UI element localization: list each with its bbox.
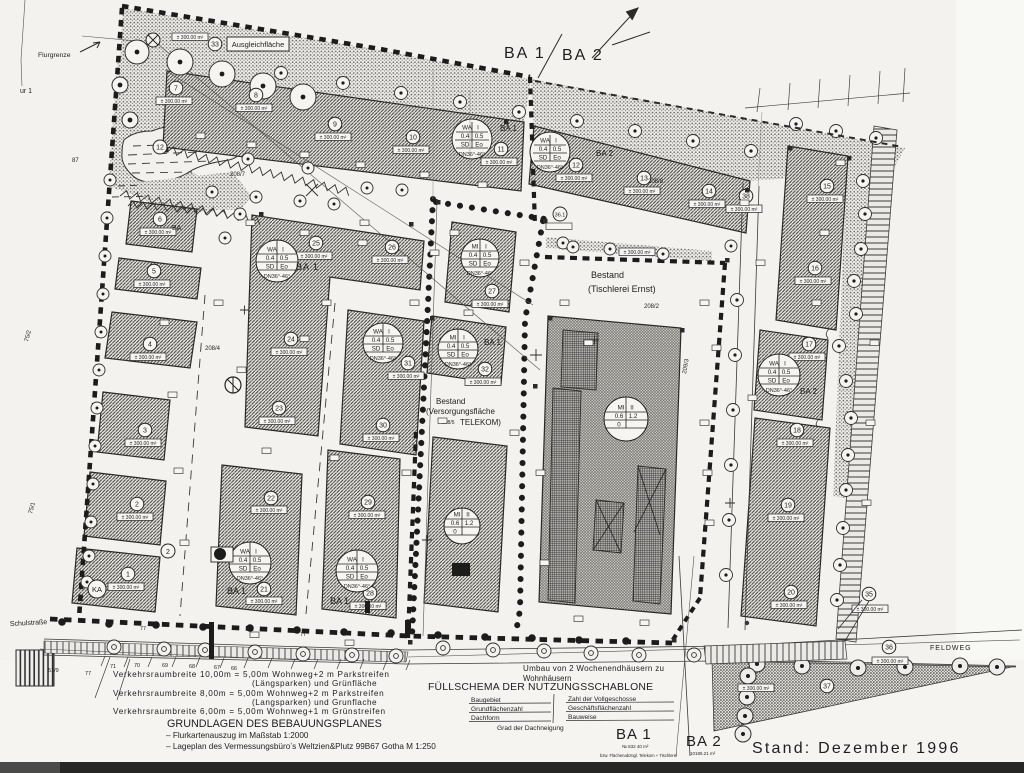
svg-text:BA 1: BA 1 (330, 596, 349, 606)
svg-text:16: 16 (811, 265, 819, 272)
svg-text:± 300.00 m²: ± 300.00 m² (776, 603, 803, 609)
svg-text:MI: MI (450, 335, 457, 342)
svg-text:0.4: 0.4 (469, 252, 478, 259)
svg-text:10185.21 m²: 10185.21 m² (690, 751, 716, 756)
svg-text:15: 15 (823, 183, 831, 190)
svg-text:SD: SD (447, 352, 456, 359)
svg-text:± 300.00 m²: ± 300.00 m² (251, 599, 278, 605)
svg-text:Eo: Eo (253, 566, 261, 573)
svg-text:Eo: Eo (280, 264, 288, 271)
svg-text:± 300.00 m²: ± 300.00 m² (477, 302, 504, 308)
svg-text:± 300.00 m²: ± 300.00 m² (800, 279, 827, 285)
svg-text:II: II (466, 512, 470, 519)
svg-text:13: 13 (640, 175, 648, 182)
svg-text:SD: SD (346, 574, 355, 581)
svg-text:BA 2: BA 2 (800, 387, 817, 396)
svg-text:MI: MI (618, 405, 625, 412)
svg-text:DN36°-46°: DN36°-46° (237, 576, 263, 582)
svg-text:FÜLLSCHEMA DER NUTZUNGSSCHAB: FÜLLSCHEMA DER NUTZUNGSSCHABLONE (428, 681, 653, 693)
svg-text:23: 23 (275, 405, 283, 412)
svg-text:± 300.00 m²: ± 300.00 m² (368, 436, 395, 442)
svg-text:BA 2: BA 2 (596, 149, 613, 158)
svg-text:± 300.00 m²: ± 300.00 m² (398, 148, 425, 154)
svg-text:0.5: 0.5 (386, 337, 395, 344)
svg-text:0.4: 0.4 (239, 557, 248, 564)
svg-text:Grad der Dachneigung: Grad der Dachneigung (497, 725, 564, 732)
svg-text:208/4: 208/4 (205, 346, 221, 352)
svg-text:SD: SD (266, 264, 275, 271)
svg-text:Verkehrsraumbreite 8,00m =: Verkehrsraumbreite 8,00m = 5,00m Wohnweg… (113, 689, 384, 698)
svg-text:51/9: 51/9 (48, 668, 59, 674)
svg-text:TELEKOM): TELEKOM) (460, 418, 501, 427)
svg-text:I: I (555, 138, 557, 145)
svg-text:± 300.00 m²: ± 300.00 m² (139, 282, 166, 288)
svg-text:I: I (463, 335, 465, 342)
svg-text:± 300.00 m²: ± 300.00 m² (256, 508, 283, 514)
svg-text:33: 33 (211, 41, 219, 48)
svg-text:SD: SD (469, 261, 478, 268)
svg-text:0.4: 0.4 (346, 565, 355, 572)
svg-text:0.6: 0.6 (615, 413, 624, 420)
svg-text:77: 77 (300, 632, 306, 638)
svg-text:8: 8 (254, 92, 258, 99)
svg-text:± 300.00 m²: ± 300.00 m² (393, 374, 420, 380)
svg-text:7: 7 (174, 85, 178, 92)
svg-text:DN36°-46°: DN36°-46° (459, 152, 485, 158)
svg-text:0.5: 0.5 (483, 252, 492, 259)
svg-text:208/8: 208/8 (648, 179, 664, 185)
svg-text:1: 1 (218, 552, 222, 559)
svg-text:I: I (388, 329, 390, 336)
svg-text:1.2: 1.2 (629, 413, 638, 420)
svg-text:77: 77 (140, 626, 146, 632)
svg-text:± 300.00 m²: ± 300.00 m² (264, 419, 291, 425)
svg-text:MI: MI (472, 244, 479, 251)
svg-text:SD: SD (461, 142, 470, 149)
svg-text:0.5: 0.5 (475, 133, 484, 140)
svg-text:BA 2: BA 2 (686, 733, 722, 750)
svg-text:37: 37 (823, 683, 831, 690)
svg-text:bzw. Flächenabzügl. Telekom +: bzw. Flächenabzügl. Telekom + Tischlerei (600, 753, 677, 758)
svg-text:(Versorgungsfläche: (Versorgungsfläche (426, 407, 495, 416)
svg-text:Baugebiet: Baugebiet (471, 697, 501, 704)
svg-text:II: II (630, 405, 634, 412)
svg-text:± 300.00 m²: ± 300.00 m² (782, 441, 809, 447)
svg-text:208/7: 208/7 (230, 172, 246, 178)
svg-text:Flurgrenze: Flurgrenze (38, 52, 71, 59)
svg-text:± 300.00 m²: ± 300.00 m² (624, 250, 651, 256)
svg-text:± 300.00 m²: ± 300.00 m² (486, 160, 513, 166)
svg-text:SD: SD (768, 378, 777, 385)
svg-text:I: I (784, 361, 786, 368)
svg-text:DN36°-46°: DN36°-46° (766, 388, 792, 394)
svg-text:19: 19 (784, 502, 792, 509)
svg-text:± 300.00 m²: ± 300.00 m² (629, 189, 656, 195)
svg-text:12: 12 (572, 162, 580, 169)
svg-text:31: 31 (404, 360, 412, 367)
svg-text:± 300.00 m²: ± 300.00 m² (377, 258, 404, 264)
svg-text:SD: SD (239, 566, 248, 573)
svg-text:Dachform: Dachform (471, 715, 500, 722)
svg-text:36.1: 36.1 (555, 213, 566, 219)
svg-text:6: 6 (158, 216, 162, 223)
svg-text:DN36°-46°: DN36°-46° (537, 165, 563, 171)
svg-text:WA: WA (240, 549, 251, 556)
svg-text:17: 17 (805, 341, 813, 348)
svg-text:1.2: 1.2 (465, 520, 474, 527)
svg-text:± 300.00 m²: ± 300.00 m² (135, 355, 162, 361)
svg-text:1: 1 (126, 571, 130, 578)
svg-text:5: 5 (152, 268, 156, 275)
svg-text:± 300.00 m²: ± 300.00 m² (773, 516, 800, 522)
svg-text:± 300.00 m²: ± 300.00 m² (276, 350, 303, 356)
svg-text:0.4: 0.4 (372, 337, 381, 344)
svg-text:№ 832 40 m²: № 832 40 m² (622, 744, 649, 749)
svg-text:± 300.00 m²: ± 300.00 m² (320, 135, 347, 141)
svg-text:I: I (255, 549, 257, 556)
svg-text:Bestand: Bestand (436, 397, 465, 406)
svg-text:0.5: 0.5 (461, 343, 470, 350)
svg-text:36: 36 (885, 644, 893, 651)
svg-text:DN36°-46°: DN36°-46° (467, 271, 493, 277)
svg-text:SD: SD (539, 155, 548, 162)
svg-text:30: 30 (379, 422, 387, 429)
svg-text:0.5: 0.5 (360, 565, 369, 572)
svg-text:Eo: Eo (475, 142, 483, 149)
svg-text:Eo: Eo (483, 261, 491, 268)
svg-text:DN36°-46°: DN36°-46° (370, 356, 396, 362)
svg-text:24: 24 (287, 336, 295, 343)
svg-text:Stand: Dezember 1996: Stand: Dezember 1996 (752, 740, 961, 757)
svg-text:22: 22 (267, 495, 275, 502)
svg-text:I: I (362, 557, 364, 564)
svg-text:0.4: 0.4 (461, 133, 470, 140)
svg-text:± 300.00 m²: ± 300.00 m² (301, 254, 328, 260)
svg-text:0.6: 0.6 (451, 520, 460, 527)
svg-text:Eo: Eo (386, 346, 394, 353)
svg-text:BA 1: BA 1 (484, 338, 501, 347)
svg-text:WA: WA (267, 247, 278, 254)
svg-text:± 300.00 m²: ± 300.00 m² (145, 230, 172, 236)
svg-text:28: 28 (366, 590, 374, 597)
svg-text:WA: WA (769, 361, 780, 368)
svg-text:0.4: 0.4 (266, 255, 275, 262)
svg-text:0.4: 0.4 (539, 146, 548, 153)
svg-text:2: 2 (166, 549, 170, 556)
svg-text:26: 26 (388, 244, 396, 251)
svg-text:11: 11 (497, 146, 504, 153)
svg-text:± 300.00 m²: ± 300.00 m² (354, 513, 381, 519)
svg-text:0.4: 0.4 (768, 369, 777, 376)
svg-text:WA: WA (462, 125, 473, 132)
svg-text:(Tischlerei Ernst): (Tischlerei Ernst) (588, 284, 656, 294)
svg-text:± 300.00 m²: ± 300.00 m² (794, 355, 821, 361)
svg-text:I: I (485, 244, 487, 251)
svg-text:70: 70 (134, 663, 140, 669)
svg-text:0.5: 0.5 (782, 369, 791, 376)
svg-text:Eo: Eo (782, 378, 790, 385)
svg-text:(Langsparken) und Grunflache: (Langsparken) und Grunflache (252, 698, 377, 707)
svg-text:25: 25 (312, 240, 320, 247)
svg-text:– Lageplan des Vermessungsb: – Lageplan des Vermessungsbüroʼs Weltzie… (166, 742, 436, 751)
svg-text:± 300.00 m²: ± 300.00 m² (561, 176, 588, 182)
svg-text:WA: WA (347, 557, 358, 564)
svg-text:18: 18 (793, 427, 801, 434)
svg-text:0: 0 (453, 529, 457, 536)
svg-text:± 300.00 m²: ± 300.00 m² (731, 207, 758, 213)
svg-text:27: 27 (488, 288, 496, 295)
svg-text:Bestand: Bestand (591, 270, 624, 280)
svg-text:SD: SD (372, 346, 381, 353)
svg-text:35: 35 (865, 591, 873, 598)
svg-text:± 300.00 m²: ± 300.00 m² (743, 686, 770, 692)
svg-text:77: 77 (85, 671, 91, 677)
svg-text:FELDWEG: FELDWEG (930, 645, 972, 652)
svg-text:29: 29 (364, 499, 372, 506)
svg-text:± 300.00 m²: ± 300.00 m² (122, 515, 149, 521)
svg-text:(Längsparken) und Grünfläche: (Längsparken) und Grünfläche (252, 679, 377, 688)
svg-text:0.5: 0.5 (280, 255, 289, 262)
svg-text:Ausgleichfläche: Ausgleichfläche (232, 40, 285, 49)
svg-text:Verkehrsraumbreite 10,00m =: Verkehrsraumbreite 10,00m = 5,00m Wohnwe… (113, 670, 390, 679)
svg-text:DN36°-46°: DN36°-46° (344, 584, 370, 590)
svg-text:87: 87 (72, 158, 79, 164)
svg-text:I: I (282, 247, 284, 254)
svg-text:± 300.00 m²: ± 300.00 m² (130, 441, 157, 447)
svg-text:BA 1: BA 1 (296, 262, 319, 272)
svg-text:Bauweise: Bauweise (568, 714, 597, 721)
svg-text:KA: KA (92, 585, 102, 594)
svg-text:I: I (477, 125, 479, 132)
svg-text:± 300.00 m²: ± 300.00 m² (812, 197, 839, 203)
svg-text:WA: WA (540, 138, 551, 145)
svg-text:± 300.00 m²: ± 300.00 m² (857, 607, 884, 613)
svg-text:9: 9 (333, 121, 337, 128)
svg-text:BA 1: BA 1 (616, 726, 652, 743)
svg-text:12: 12 (156, 144, 164, 151)
svg-text:Eo: Eo (553, 155, 561, 162)
svg-text:WA: WA (373, 329, 384, 336)
svg-text:0.5: 0.5 (553, 146, 562, 153)
svg-text:GRUNDLAGEN DES BEBAUUNGSPLAN: GRUNDLAGEN DES BEBAUUNGSPLANES (167, 718, 382, 730)
svg-text:± 300.00 m²: ± 300.00 m² (694, 202, 721, 208)
svg-text:0.5: 0.5 (253, 557, 262, 564)
svg-text:DN36°-46°: DN36°-46° (445, 362, 471, 368)
svg-text:BA 1: BA 1 (500, 124, 517, 133)
svg-text:Eo: Eo (461, 352, 469, 359)
svg-text:20: 20 (787, 589, 795, 596)
svg-text:1: 1 (459, 566, 463, 575)
svg-text:Umbau von 2 Wochenendhäuser: Umbau von 2 Wochenendhäusern zu (523, 664, 664, 673)
svg-text:± 300.00 m²: ± 300.00 m² (241, 106, 268, 112)
svg-text:38: 38 (742, 193, 750, 200)
svg-text:± 300.00 m²: ± 300.00 m² (177, 35, 204, 41)
svg-text:MI: MI (454, 512, 461, 519)
svg-text:208/2: 208/2 (644, 304, 660, 310)
svg-text:Eo: Eo (360, 574, 368, 581)
svg-text:± 300.00 m²: ± 300.00 m² (470, 380, 497, 386)
svg-text:BA 2: BA 2 (562, 47, 604, 64)
svg-text:BA 1: BA 1 (504, 45, 546, 62)
svg-text:± 300.00 m²: ± 300.00 m² (161, 99, 188, 105)
svg-text:Verkehrsraumbreite 6,00m =: Verkehrsraumbreite 6,00m = 5,00m Wohnweg… (113, 707, 386, 716)
svg-text:± 300.00 m²: ± 300.00 m² (877, 659, 904, 665)
svg-text:ur 1: ur 1 (20, 88, 32, 95)
svg-text:DN36°-46°: DN36°-46° (264, 274, 290, 280)
svg-text:– Flurkartenauszug im Maßst: – Flurkartenauszug im Maßstab 1:2000 (166, 731, 309, 740)
svg-text:4: 4 (148, 341, 152, 348)
svg-text:2: 2 (135, 501, 139, 508)
svg-text:BA: BA (172, 225, 182, 232)
svg-text:69: 69 (162, 663, 168, 669)
svg-text:21: 21 (260, 586, 268, 593)
svg-text:14: 14 (705, 188, 713, 195)
svg-text:32: 32 (481, 366, 489, 373)
svg-text:3: 3 (143, 427, 147, 434)
svg-text:10: 10 (409, 134, 417, 141)
svg-text:0: 0 (617, 422, 621, 429)
svg-text:BA 1: BA 1 (227, 586, 246, 596)
svg-text:± 300.00 m²: ± 300.00 m² (113, 585, 140, 591)
svg-text:0.4: 0.4 (447, 343, 456, 350)
